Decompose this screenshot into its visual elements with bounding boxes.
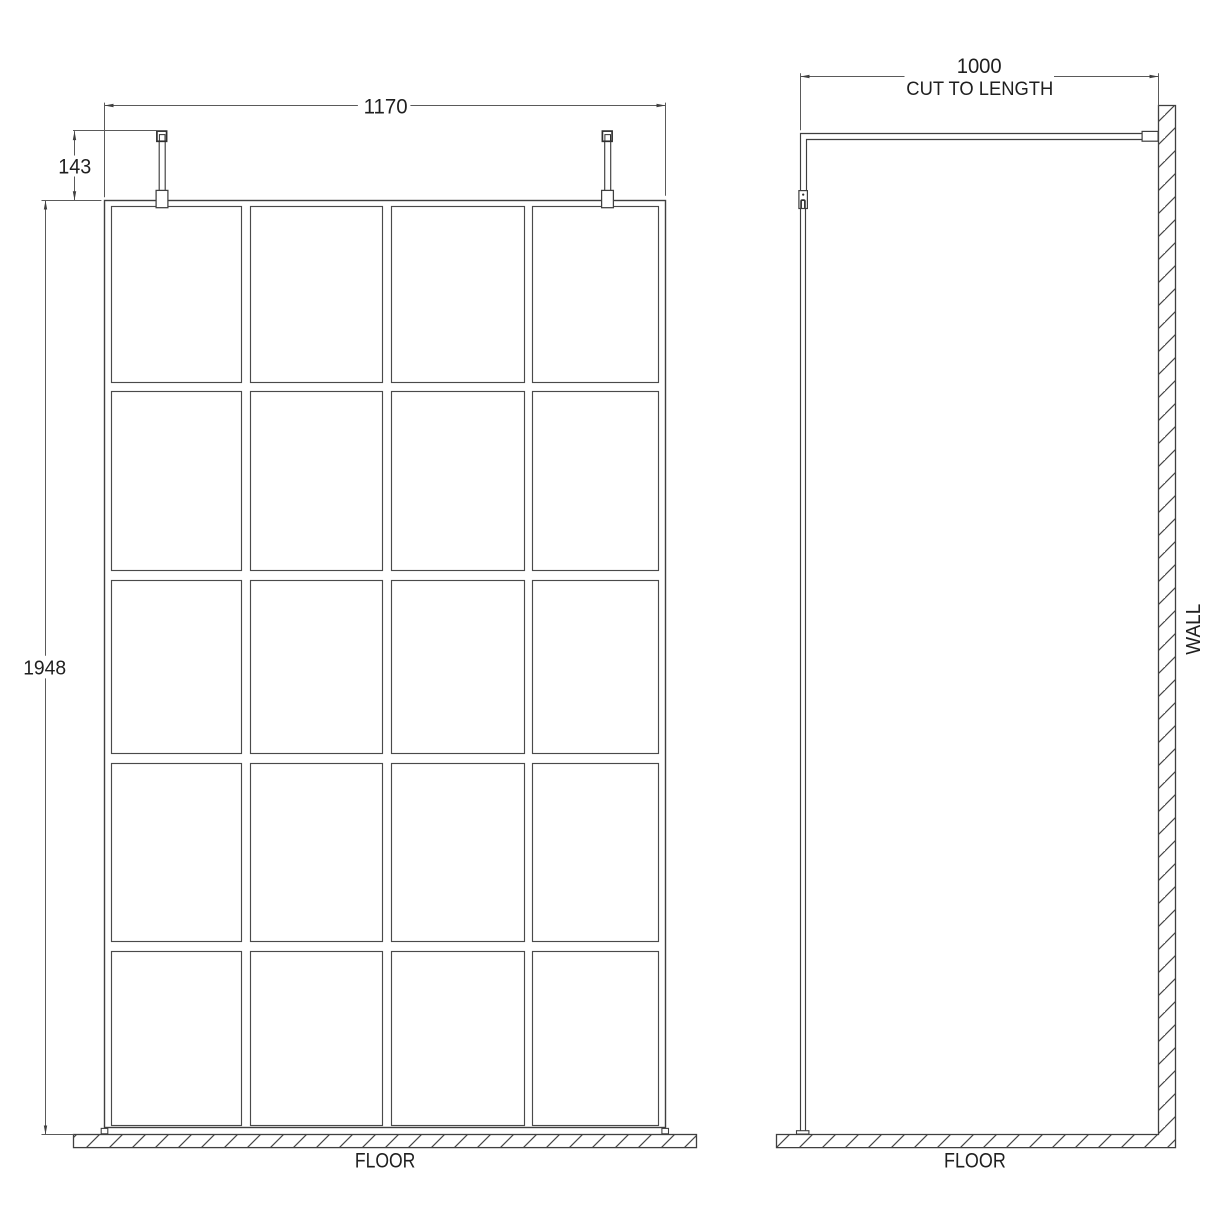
svg-text:143: 143 [58,155,91,178]
svg-text:FLOOR: FLOOR [355,1150,416,1173]
svg-text:WALL: WALL [1183,604,1205,655]
svg-text:1000: 1000 [957,55,1002,78]
svg-text:1948: 1948 [23,657,66,679]
svg-text:FLOOR: FLOOR [944,1150,1006,1173]
svg-text:CUT TO LENGTH: CUT TO LENGTH [906,79,1053,100]
svg-text:1170: 1170 [364,95,408,119]
